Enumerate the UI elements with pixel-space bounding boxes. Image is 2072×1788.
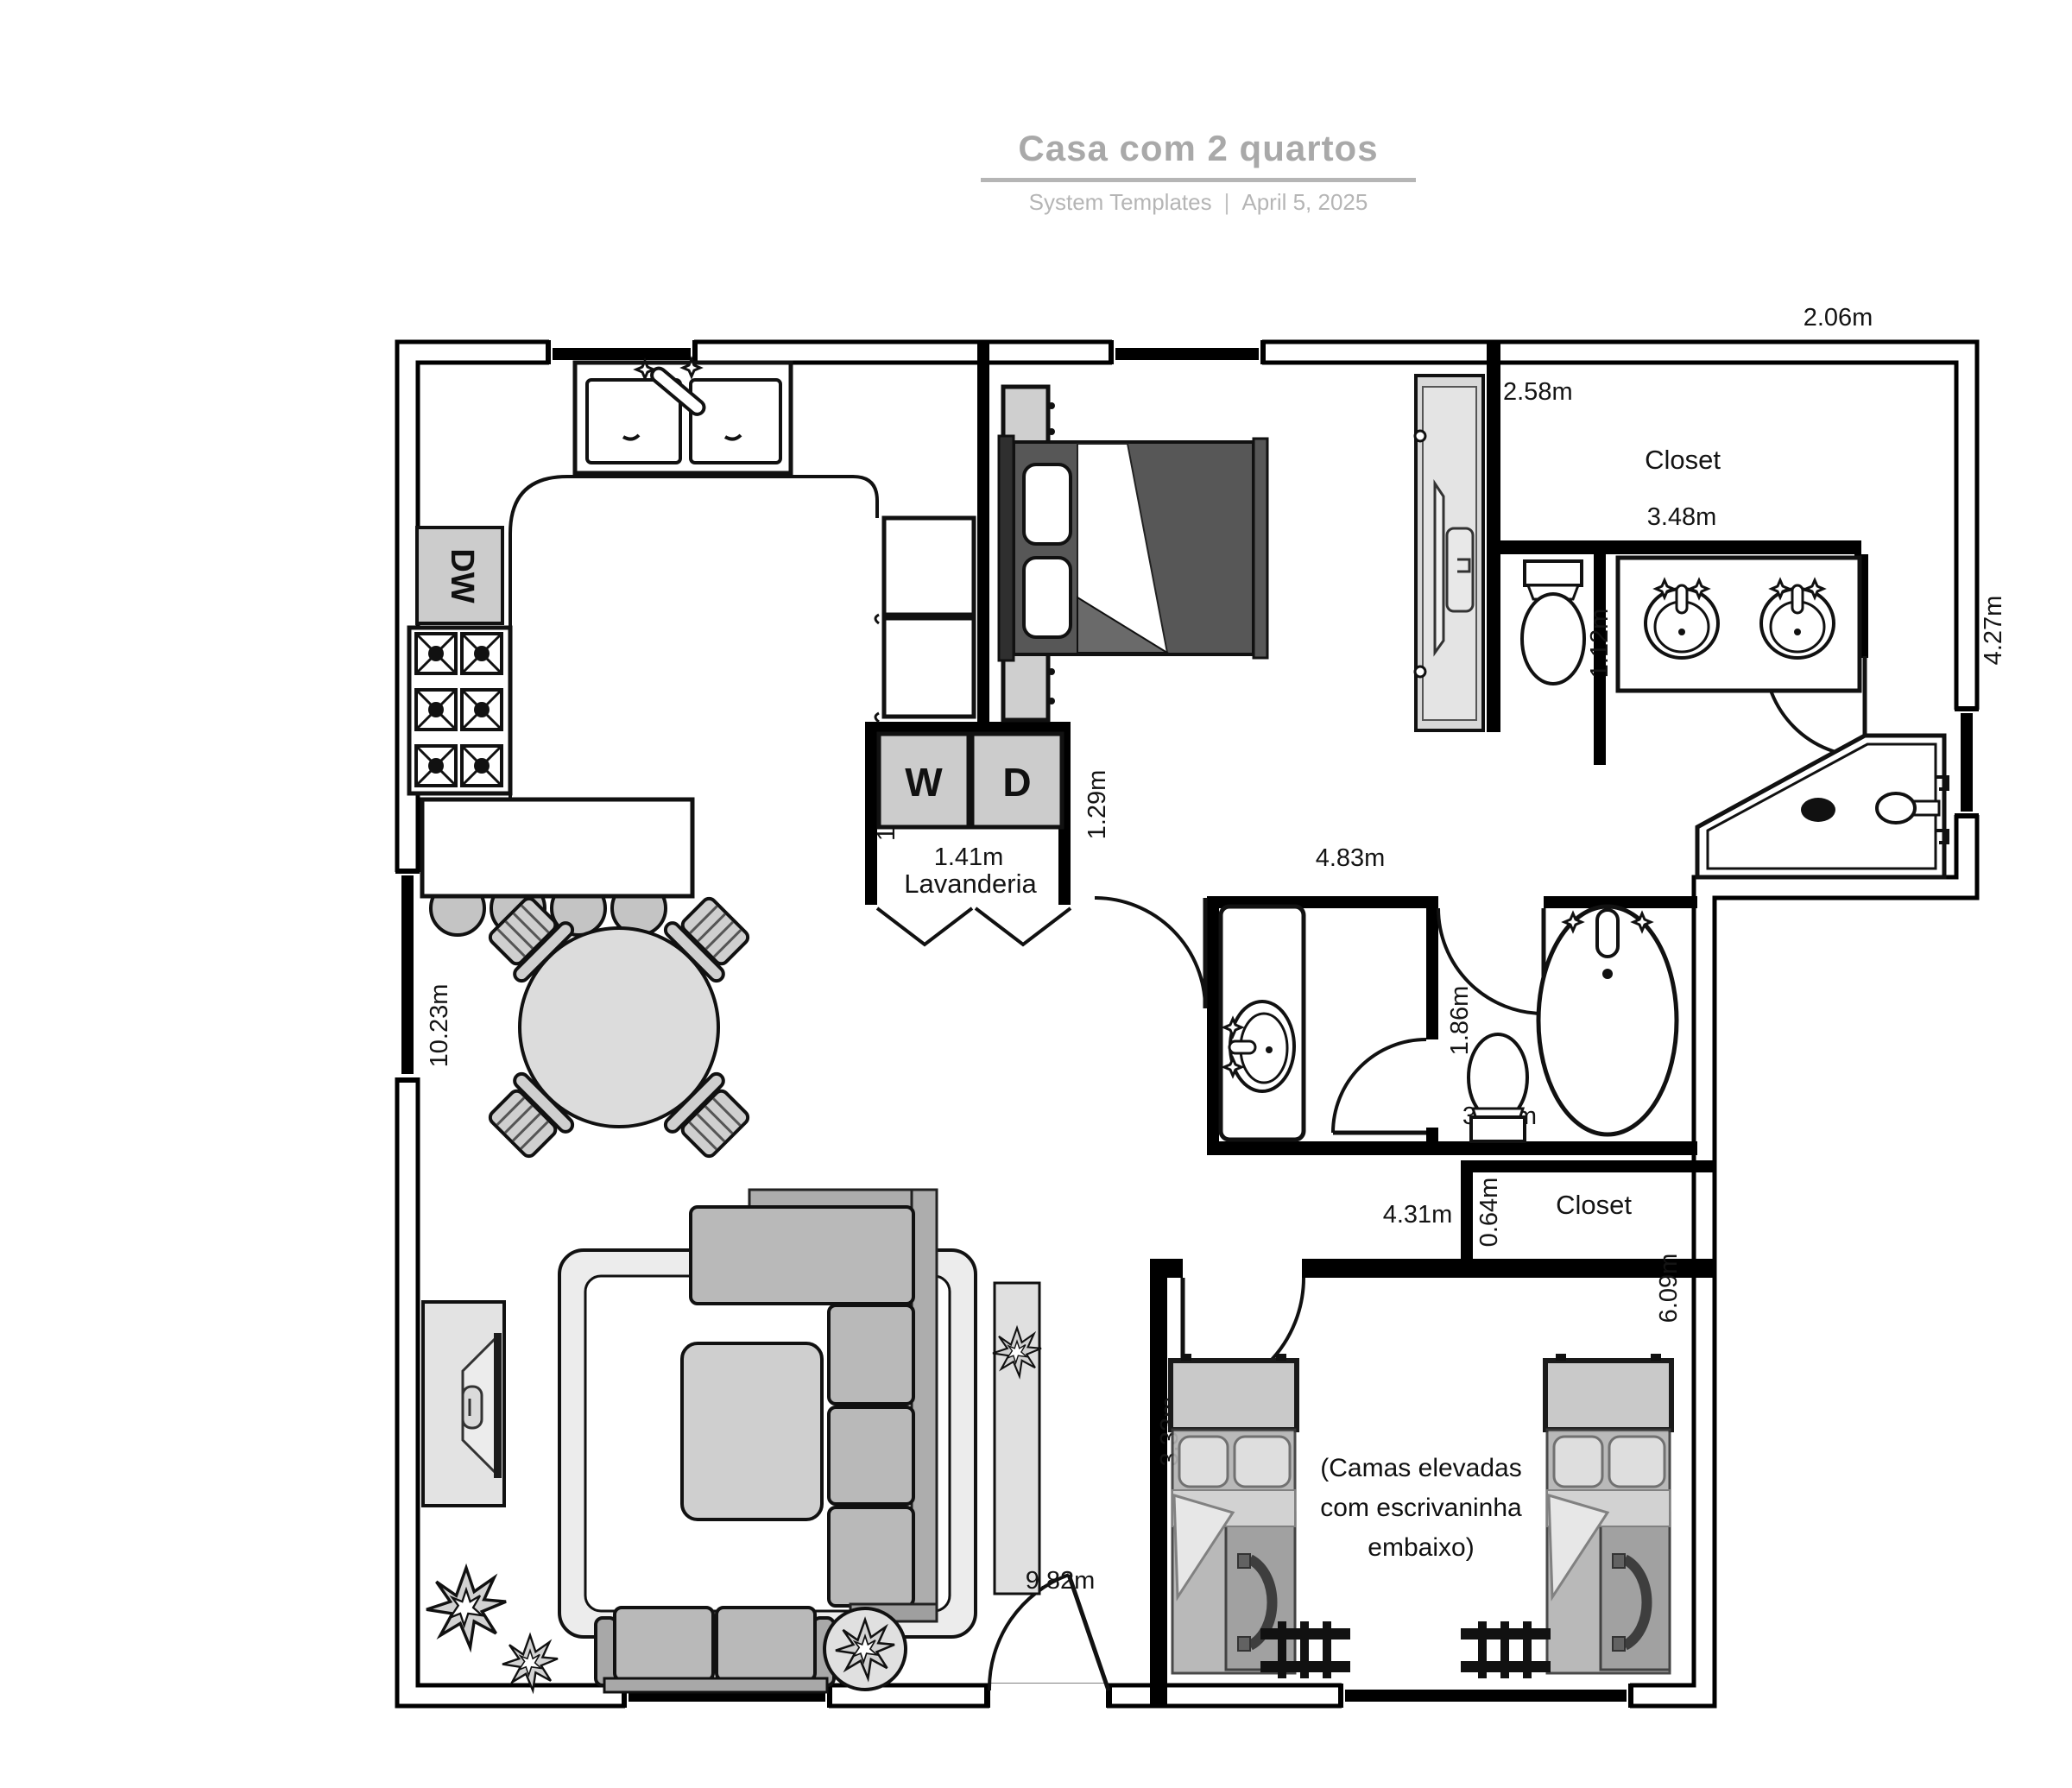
- desk-under-bed-right: [1601, 1513, 1670, 1670]
- kitchen: DW: [409, 359, 974, 935]
- bed-headboard: [999, 436, 1014, 660]
- window-right-masterbath: [1954, 706, 1980, 818]
- wall-bath2-bottom: [1207, 1141, 1697, 1155]
- plan-author: System Templates: [1029, 189, 1212, 215]
- dining-area: 10.23m: [426, 890, 756, 1166]
- wall-bath2-left: [1207, 896, 1219, 1153]
- hall-gap-label: 1.29m: [1083, 770, 1111, 840]
- shower-drain: [1801, 798, 1835, 822]
- laundry: 1 W D 1.41m Lavanderia: [873, 734, 1071, 945]
- plan-date: April 5, 2025: [1241, 189, 1368, 215]
- wall-bedroom2-left: [1150, 1259, 1167, 1706]
- side-table: [824, 1608, 906, 1690]
- bed-footboard: [1254, 439, 1267, 658]
- toilet2: [1469, 1034, 1527, 1141]
- floorplan-page: Casa com 2 quartos System Templates|Apri…: [0, 0, 2072, 1788]
- loveseat: [596, 1608, 834, 1692]
- ladder-right: [1461, 1621, 1551, 1678]
- subtitle-separator: |: [1224, 189, 1230, 215]
- sofa-seat-3: [829, 1507, 913, 1606]
- pillow-right-2: [1609, 1437, 1665, 1487]
- dryer-label: D: [1002, 760, 1031, 805]
- washer-label: W: [905, 760, 943, 805]
- wall-bedroom2-top: [1302, 1259, 1715, 1278]
- bedroom2-note-line3: embaixo): [1368, 1533, 1474, 1562]
- bedroom1: 1.69m: [997, 376, 1483, 730]
- wall-laundry-left: [865, 722, 877, 905]
- wall-closet2-top: [1461, 1160, 1715, 1172]
- bed-pillow-1: [1024, 464, 1071, 544]
- closet1-width-label: 3.48m: [1647, 503, 1717, 531]
- console-table: [993, 1283, 1041, 1594]
- closet1-depth-label: 2.58m: [1503, 378, 1573, 406]
- loveseat-cushion-2: [717, 1608, 815, 1680]
- dishwasher-label: DW: [444, 548, 480, 603]
- tv-screen: [1435, 483, 1443, 653]
- wall-laundry-top: [865, 722, 1071, 732]
- closet1-name-label: Closet: [1645, 445, 1721, 475]
- bedroom2-note-line2: com escrivaninha: [1320, 1494, 1522, 1522]
- bedroom2: 6.09m 3.33m (Camas elevadas com escrivan…: [1156, 1254, 1683, 1678]
- window-bottom-bedroom2: [1338, 1683, 1633, 1709]
- floorplan-svg: DW 1: [0, 0, 2072, 1788]
- plan-subtitle: System Templates|April 5, 2025: [981, 189, 1416, 216]
- sofa-chaise: [691, 1207, 913, 1304]
- laundry-width-label: 1.41m: [934, 843, 1004, 871]
- double-bed: [999, 436, 1267, 660]
- master-closet: 2.58m Closet 3.48m: [1503, 378, 1721, 531]
- loveseat-cushion-1: [615, 1608, 713, 1680]
- sofa-seat-2: [829, 1407, 913, 1504]
- top-right-width-label: 2.06m: [1804, 304, 1873, 332]
- living-room: [423, 1190, 1041, 1692]
- wall-closet1-bottom: [1500, 540, 1861, 554]
- window-bedroom1-top: [1109, 339, 1266, 365]
- nightstand-bottom: [1003, 653, 1048, 720]
- wall-bedroom1-closet1: [1487, 342, 1500, 732]
- vanity2: [1221, 907, 1304, 1140]
- page-title: Casa com 2 quartos: [981, 128, 1416, 169]
- bedroom2-note-line1: (Camas elevadas: [1320, 1454, 1521, 1482]
- passage-width-label: 4.31m: [1383, 1201, 1453, 1229]
- bathtub: [1538, 907, 1677, 1134]
- coffee-table: [682, 1343, 822, 1519]
- vanity1-width-label: 1.12m: [1586, 609, 1614, 679]
- corner-shower: [1697, 736, 1948, 877]
- kitchen-counter-edge: [510, 477, 877, 799]
- kitchen-tall-cabinets: [875, 518, 974, 722]
- kitchen-sink: [575, 359, 791, 473]
- bed-pillow-2: [1024, 558, 1071, 637]
- pillow-left-2: [1235, 1437, 1290, 1487]
- door-toilet2: [1333, 1039, 1426, 1133]
- hall-width-label: 4.83m: [1316, 844, 1386, 872]
- plan-header: Casa com 2 quartos System Templates|Apri…: [981, 128, 1416, 216]
- window-left-living: [395, 869, 420, 1083]
- note-text: (Camas elevadas com escrivaninha embaixo…: [1320, 1454, 1522, 1562]
- bedroom2-height-label: 6.09m: [1655, 1254, 1683, 1324]
- bath2-width-label: 1.86m: [1446, 986, 1474, 1056]
- toilet-master: [1522, 561, 1584, 684]
- kitchen-island: [422, 799, 692, 896]
- right-height-label: 4.27m: [1980, 596, 2007, 666]
- closet2-gap-label: 0.64m: [1475, 1178, 1503, 1248]
- closet2-name-label: Closet: [1556, 1190, 1632, 1220]
- tv-console: [423, 1302, 504, 1506]
- laundry-bifold-doors: [877, 908, 1071, 945]
- bottom-width-label: 9.82m: [1026, 1567, 1096, 1595]
- dishwasher: DW: [417, 528, 502, 623]
- pillow-left-1: [1179, 1437, 1228, 1487]
- bath2: 1.86m 3 m: [1221, 907, 1677, 1141]
- living-height-label: 10.23m: [426, 984, 453, 1068]
- door-corridor: [1095, 898, 1205, 1008]
- stove: [409, 628, 510, 793]
- sofa-seat-1: [829, 1305, 913, 1404]
- dining-table: [520, 928, 718, 1127]
- dresser-tv: [1415, 376, 1483, 730]
- wall-bath2-partition-upper: [1426, 896, 1438, 1039]
- double-vanity: [1618, 558, 1860, 691]
- master-bath: 4 1.12m: [1522, 558, 1948, 877]
- pillow-right-1: [1554, 1437, 1602, 1487]
- laundry-name-label: Lavanderia: [904, 869, 1037, 899]
- title-underline: [981, 178, 1416, 182]
- wall-kitchen-bedroom1: [977, 342, 989, 722]
